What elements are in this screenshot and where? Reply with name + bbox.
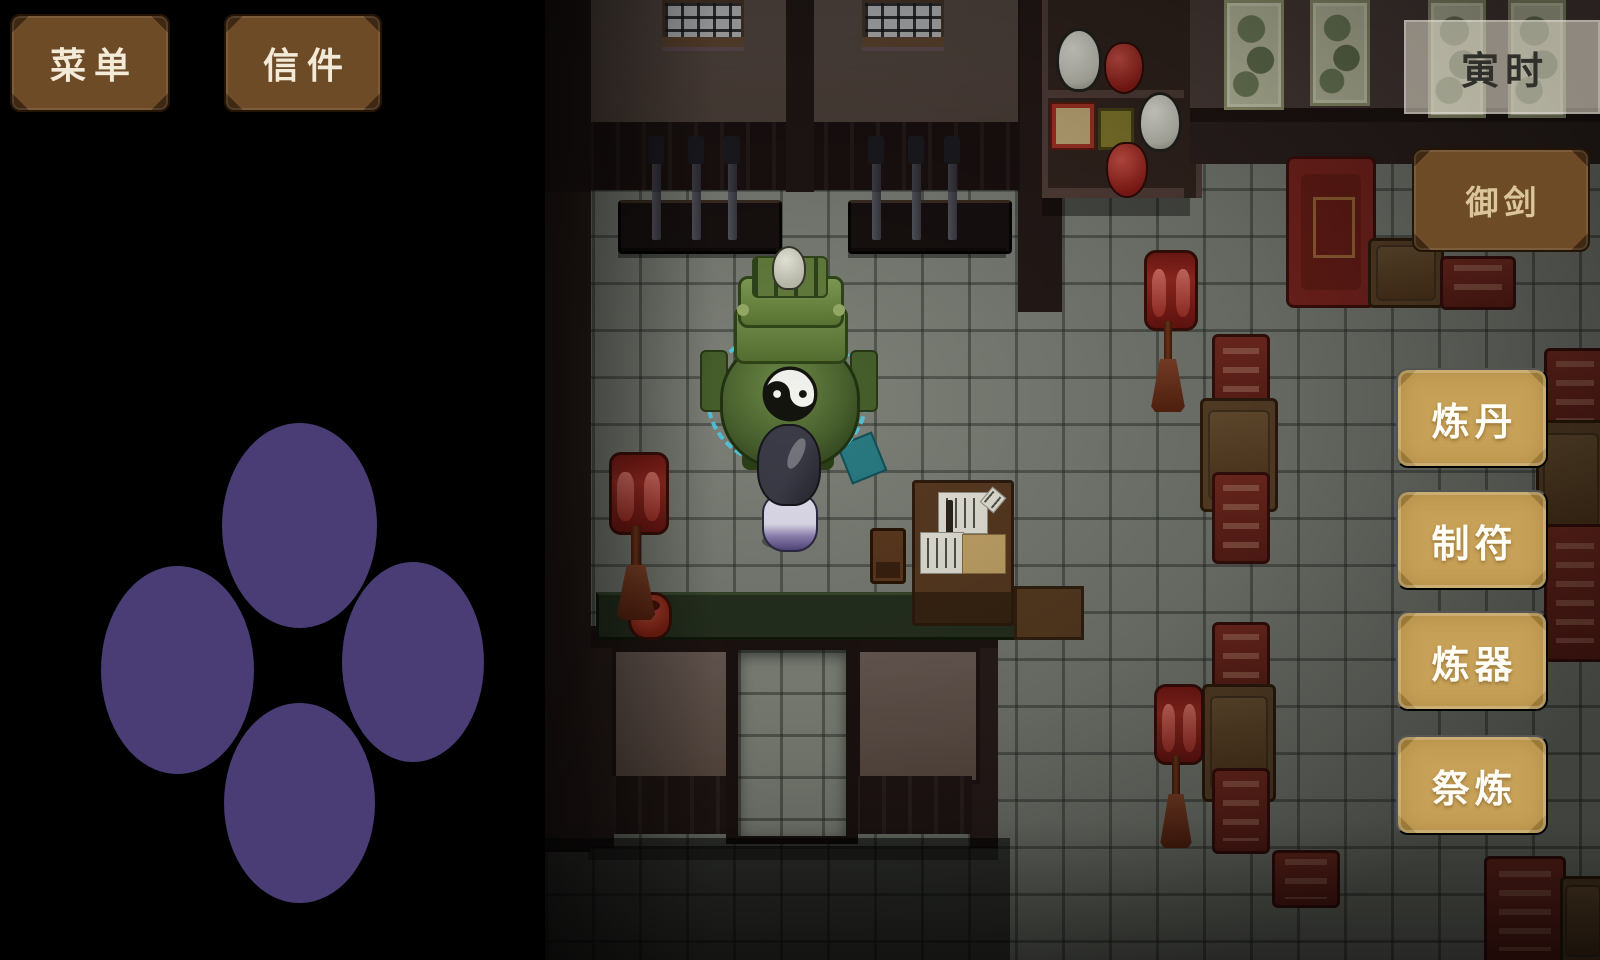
chair (1272, 850, 1340, 908)
framed-picture (1052, 104, 1094, 148)
yin-yang-symbol (762, 366, 818, 422)
wall-panel (612, 648, 736, 784)
lantern-pole (631, 526, 641, 570)
wall-wainscot (612, 776, 728, 834)
bench-shadow (618, 248, 776, 258)
scroll-painting (1310, 0, 1370, 106)
lantern-head (1144, 250, 1197, 331)
sword (912, 140, 921, 240)
action-button-forge[interactable]: 炼器 (1396, 611, 1548, 711)
dpad-left-button[interactable] (101, 566, 254, 774)
red-vase (1106, 142, 1148, 198)
dpad-down-button[interactable] (224, 703, 375, 903)
wall-shadow (588, 846, 998, 860)
chair (1212, 472, 1270, 564)
doorway (738, 650, 846, 836)
chair (1212, 768, 1270, 854)
lantern-head (609, 452, 669, 535)
dpad-up-button[interactable] (222, 423, 377, 628)
time-badge: 寅时 (1404, 20, 1600, 114)
lantern-base (1151, 359, 1185, 412)
stool (870, 528, 906, 584)
lantern-base (1160, 794, 1191, 848)
wooden-crate (1014, 586, 1084, 640)
action-button-talisman[interactable]: 制符 (1396, 490, 1548, 590)
lantern-base (617, 565, 655, 620)
wall-pillar (786, 0, 814, 192)
chair (1440, 256, 1516, 310)
action-button-alchemy[interactable]: 炼丹 (1396, 368, 1548, 468)
wall-panel (856, 648, 980, 784)
dining-table (1560, 876, 1600, 960)
player-character-hair (757, 424, 821, 506)
red-lantern (1140, 250, 1196, 412)
tan-scroll (962, 534, 1006, 574)
lantern-head (1154, 684, 1204, 765)
sword (872, 140, 881, 240)
dpad-right-button[interactable] (342, 562, 484, 762)
wall-wainscot (856, 776, 972, 834)
menu-button[interactable]: 菜单 (10, 14, 170, 112)
left-wall-pillar (545, 0, 591, 852)
shelf-shadow (1042, 198, 1190, 216)
mail-button[interactable]: 信件 (224, 14, 382, 112)
barred-window (662, 0, 744, 40)
red-vase (1104, 42, 1144, 94)
sword (692, 140, 701, 240)
sword-flight-button[interactable]: 御剑 (1412, 148, 1590, 252)
throne-chair (1286, 156, 1376, 308)
chair (1484, 856, 1566, 960)
bench-shadow (848, 248, 1006, 258)
action-button-sacrifice[interactable]: 祭炼 (1396, 735, 1548, 835)
sword (728, 140, 737, 240)
lantern-pole (1172, 756, 1180, 799)
game-screen: 菜单 信件 寅时 御剑 炼丹 制符 炼器 祭炼 (0, 0, 1600, 960)
red-lantern (604, 452, 668, 620)
white-jar (1056, 28, 1102, 92)
sword (948, 140, 957, 240)
scroll-paper (920, 532, 964, 574)
cauldron-finial (772, 246, 806, 290)
chair (1544, 524, 1600, 662)
barred-window (862, 0, 944, 40)
white-jar (1138, 92, 1182, 152)
sword (652, 140, 661, 240)
scroll-painting (1224, 0, 1284, 110)
red-lantern (1150, 684, 1202, 848)
lantern-pole (1164, 321, 1173, 363)
wall-pillar (588, 626, 614, 848)
